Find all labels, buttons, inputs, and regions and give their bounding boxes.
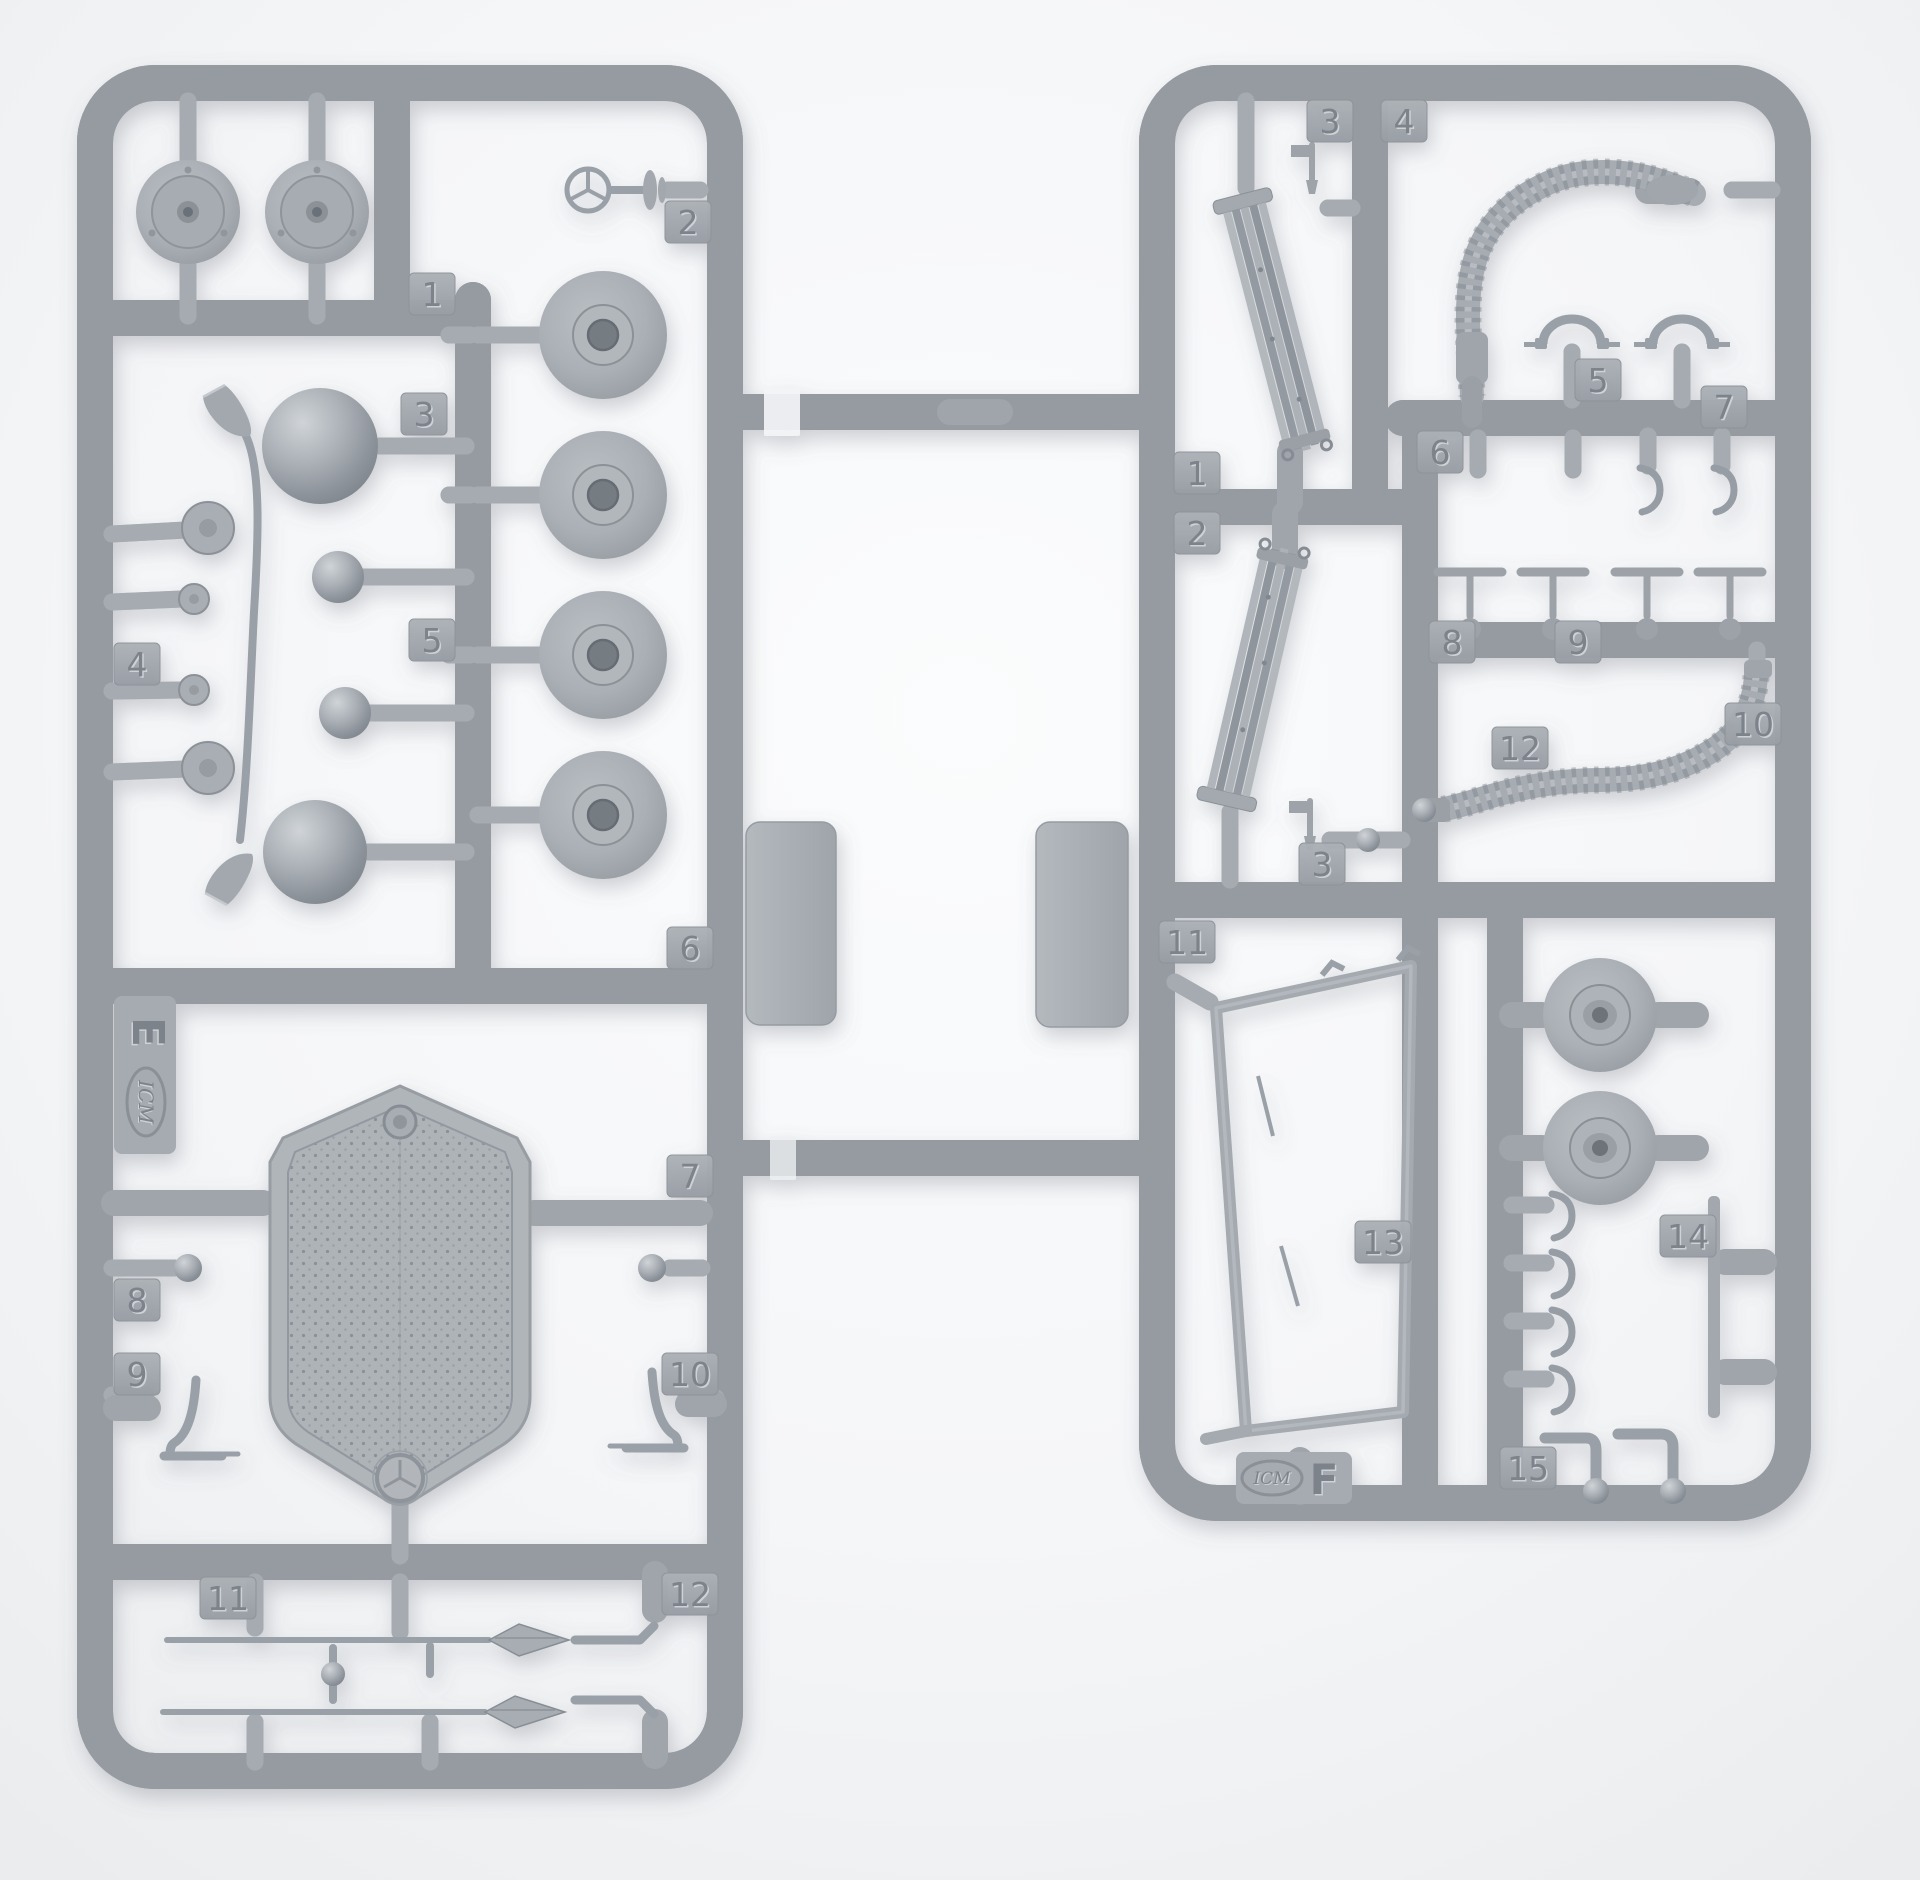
brake-disc-1 (136, 160, 240, 264)
hub-disc-3 (539, 591, 667, 719)
part-number: 8 (1442, 623, 1463, 662)
part-number: 15 (1507, 1449, 1549, 1488)
part-number: 4 (1394, 102, 1415, 141)
hub-disc-2 (539, 431, 667, 559)
svg-text:ICM: ICM (1252, 1469, 1291, 1489)
small-ball-1 (312, 551, 364, 603)
small-disc-3 (179, 675, 209, 705)
gate-ball (1356, 828, 1380, 852)
small-disc-1 (182, 502, 234, 554)
svg-text:ICM: ICM (134, 1079, 158, 1124)
part-number: 2 (678, 203, 699, 242)
part-number-tag: 7 7 (1701, 386, 1747, 429)
ball-knob-right (638, 1254, 666, 1282)
part-number-tag: 14 14 (1660, 1215, 1716, 1258)
part-number-tag: 10 10 (662, 1353, 718, 1396)
sprue-e-branding: E E ICM ICM (114, 996, 176, 1154)
part-number-tag: 13 13 (1355, 1221, 1411, 1264)
part-number: 1 (1187, 454, 1208, 493)
part-number: 7 (1714, 388, 1735, 427)
clamp-plate-2 (1036, 822, 1128, 1027)
photo-background (0, 0, 1920, 1880)
part-number-tag: 5 5 (1575, 359, 1621, 402)
hub-disc-4 (539, 751, 667, 879)
part-number-tag: 8 8 (1429, 621, 1475, 664)
part-number-tag: 3 3 (1299, 843, 1345, 886)
part-number-tag: 4 4 (1381, 100, 1427, 143)
part-number-tag: 8 8 (114, 1279, 160, 1322)
part-number: 9 (127, 1355, 148, 1394)
ball-knob-left (174, 1254, 202, 1282)
part-number: 2 (1187, 514, 1208, 553)
hose-fitting (1646, 175, 1698, 205)
small-disc-4 (182, 742, 234, 794)
part-number: 9 (1568, 623, 1589, 662)
part-number: 12 (1499, 729, 1541, 768)
part-number: 13 (1362, 1223, 1404, 1262)
wheel-disc-2 (1543, 1091, 1657, 1205)
part-number: 6 (1430, 433, 1451, 472)
part-number-tag: 9 9 (1555, 621, 1601, 664)
part-number-tag: 11 11 (200, 1577, 256, 1620)
part-number: 1 (422, 275, 443, 314)
part-number-tag: 10 10 (1725, 703, 1781, 746)
part-number: 3 (414, 395, 435, 434)
wheel-disc-1 (1543, 958, 1657, 1072)
part-number: 4 (127, 645, 148, 684)
horn-bulb-ball-large (262, 388, 378, 504)
part-number: 3 (1312, 845, 1333, 884)
sprue-photo: E E ICM ICM 1 1 2 2 (0, 0, 1920, 1880)
part-number-tag: 15 15 (1500, 1447, 1556, 1490)
part-number: 3 (1320, 102, 1341, 141)
part-number: 10 (669, 1355, 711, 1394)
grille-badge-star (373, 1451, 427, 1505)
part-number: 10 (1732, 705, 1774, 744)
sprue-f-branding: ICM ICM F F (1236, 1452, 1352, 1506)
part-number: 11 (1166, 923, 1208, 962)
hub-disc-1 (539, 271, 667, 399)
label-sticker-2 (770, 1136, 796, 1180)
part-number-tag: 4 4 (114, 643, 160, 686)
part-number-tag: 5 5 (409, 619, 455, 662)
small-ball-2 (319, 687, 371, 739)
part-number: 7 (680, 1157, 701, 1196)
part-number-tag: 11 11 (1159, 921, 1215, 964)
part-number-tag: 3 3 (401, 393, 447, 436)
part-number: 14 (1667, 1217, 1709, 1256)
svg-text:F: F (1310, 1455, 1339, 1504)
part-number-tag: 7 7 (667, 1155, 713, 1198)
part-number: 12 (669, 1575, 711, 1614)
part-number-tag: 1 1 (1174, 452, 1220, 495)
part-number-tag: 12 12 (1492, 727, 1548, 770)
part-number-tag: 2 2 (665, 201, 711, 244)
part-number: 5 (1588, 361, 1609, 400)
part-number: 5 (422, 621, 443, 660)
part-number: 6 (680, 929, 701, 968)
svg-text:E: E (122, 1017, 173, 1047)
part-number-tag: 6 6 (667, 927, 713, 970)
label-sticker (764, 388, 800, 436)
frame-foot (1206, 1431, 1246, 1439)
part-number: 8 (127, 1281, 148, 1320)
clamp-plate-1 (746, 822, 836, 1025)
small-disc-2 (179, 584, 209, 614)
hose-collar (1744, 660, 1772, 678)
sprue-photo-canvas: E E ICM ICM 1 1 2 2 (0, 0, 1920, 1880)
part-number-tag: 2 2 (1174, 512, 1220, 555)
brake-disc-2 (265, 160, 369, 264)
part-number-tag: 3 3 (1307, 100, 1353, 143)
part-number-tag: 6 6 (1417, 431, 1463, 474)
part-number: 11 (207, 1579, 249, 1618)
part-number-tag: 12 12 (662, 1573, 718, 1616)
horn-bulb-ball-2 (263, 800, 367, 904)
radiator-grille (270, 1086, 530, 1505)
part-number-tag: 9 9 (114, 1353, 160, 1396)
part-number-tag: 1 1 (409, 273, 455, 316)
gate-ball (321, 1662, 345, 1686)
